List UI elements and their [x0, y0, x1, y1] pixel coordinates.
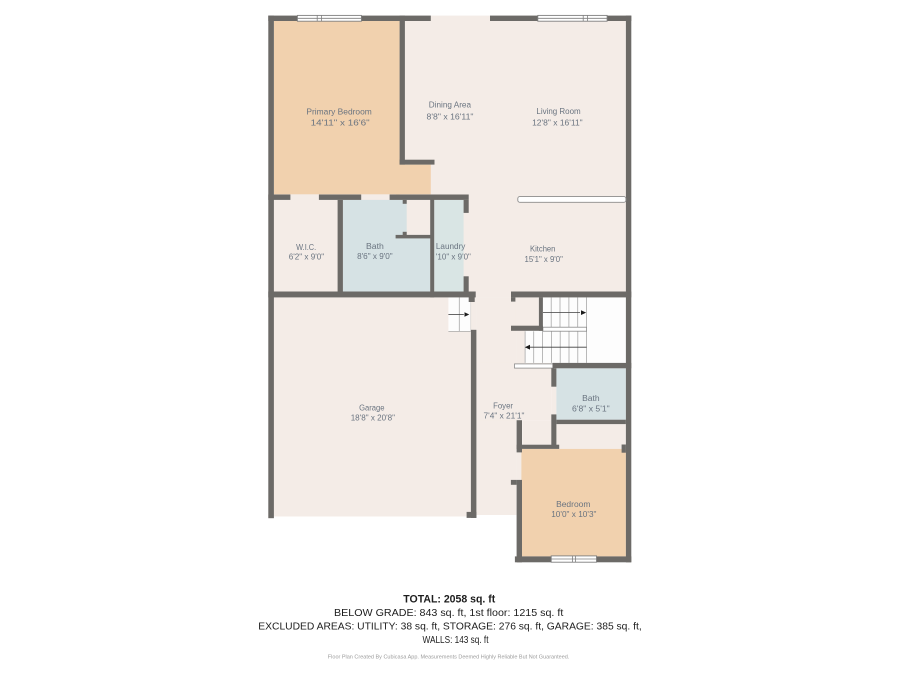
svg-text:Dining Area: Dining Area — [429, 100, 471, 110]
svg-text:Laundry: Laundry — [436, 241, 466, 251]
svg-text:'10" x 9'0": '10" x 9'0" — [436, 251, 471, 261]
svg-text:Bedroom: Bedroom — [556, 499, 590, 509]
svg-text:W.I.C.: W.I.C. — [296, 242, 316, 252]
svg-text:TOTAL: 2058 sq. ft: TOTAL: 2058 sq. ft — [403, 593, 495, 605]
svg-text:Floor Plan Created By Cubicasa: Floor Plan Created By Cubicasa App. Meas… — [328, 655, 570, 661]
svg-text:Garage: Garage — [359, 402, 385, 412]
svg-text:10'0" x 10'3": 10'0" x 10'3" — [551, 509, 596, 519]
svg-text:Foyer: Foyer — [493, 400, 513, 410]
svg-text:Bath: Bath — [366, 241, 384, 251]
svg-text:14'11" x 16'6": 14'11" x 16'6" — [311, 117, 370, 127]
svg-text:7'4" x 21'1": 7'4" x 21'1" — [484, 411, 525, 421]
svg-text:15'1" x 9'0": 15'1" x 9'0" — [525, 254, 563, 264]
svg-text:6'8" x 5'1": 6'8" x 5'1" — [572, 403, 610, 413]
svg-text:12'8" x 16'11": 12'8" x 16'11" — [532, 117, 583, 127]
svg-text:8'6" x 9'0": 8'6" x 9'0" — [357, 251, 393, 261]
svg-text:18'8" x 20'8": 18'8" x 20'8" — [351, 412, 395, 422]
svg-text:Living Room: Living Room — [536, 106, 580, 116]
svg-text:EXCLUDED AREAS: UTILITY: 38 sq: EXCLUDED AREAS: UTILITY: 38 sq. ft, STOR… — [258, 621, 641, 632]
svg-text:Kitchen: Kitchen — [530, 244, 556, 254]
svg-text:BELOW GRADE: 843 sq. ft, 1st f: BELOW GRADE: 843 sq. ft, 1st floor: 1215… — [334, 608, 563, 619]
svg-text:Bath: Bath — [582, 393, 600, 403]
svg-text:6'2" x 9'0": 6'2" x 9'0" — [289, 252, 325, 262]
svg-text:WALLS: 143 sq. ft: WALLS: 143 sq. ft — [423, 635, 489, 646]
svg-text:8'8" x 16'11": 8'8" x 16'11" — [427, 111, 474, 121]
svg-text:Primary Bedroom: Primary Bedroom — [306, 107, 371, 117]
